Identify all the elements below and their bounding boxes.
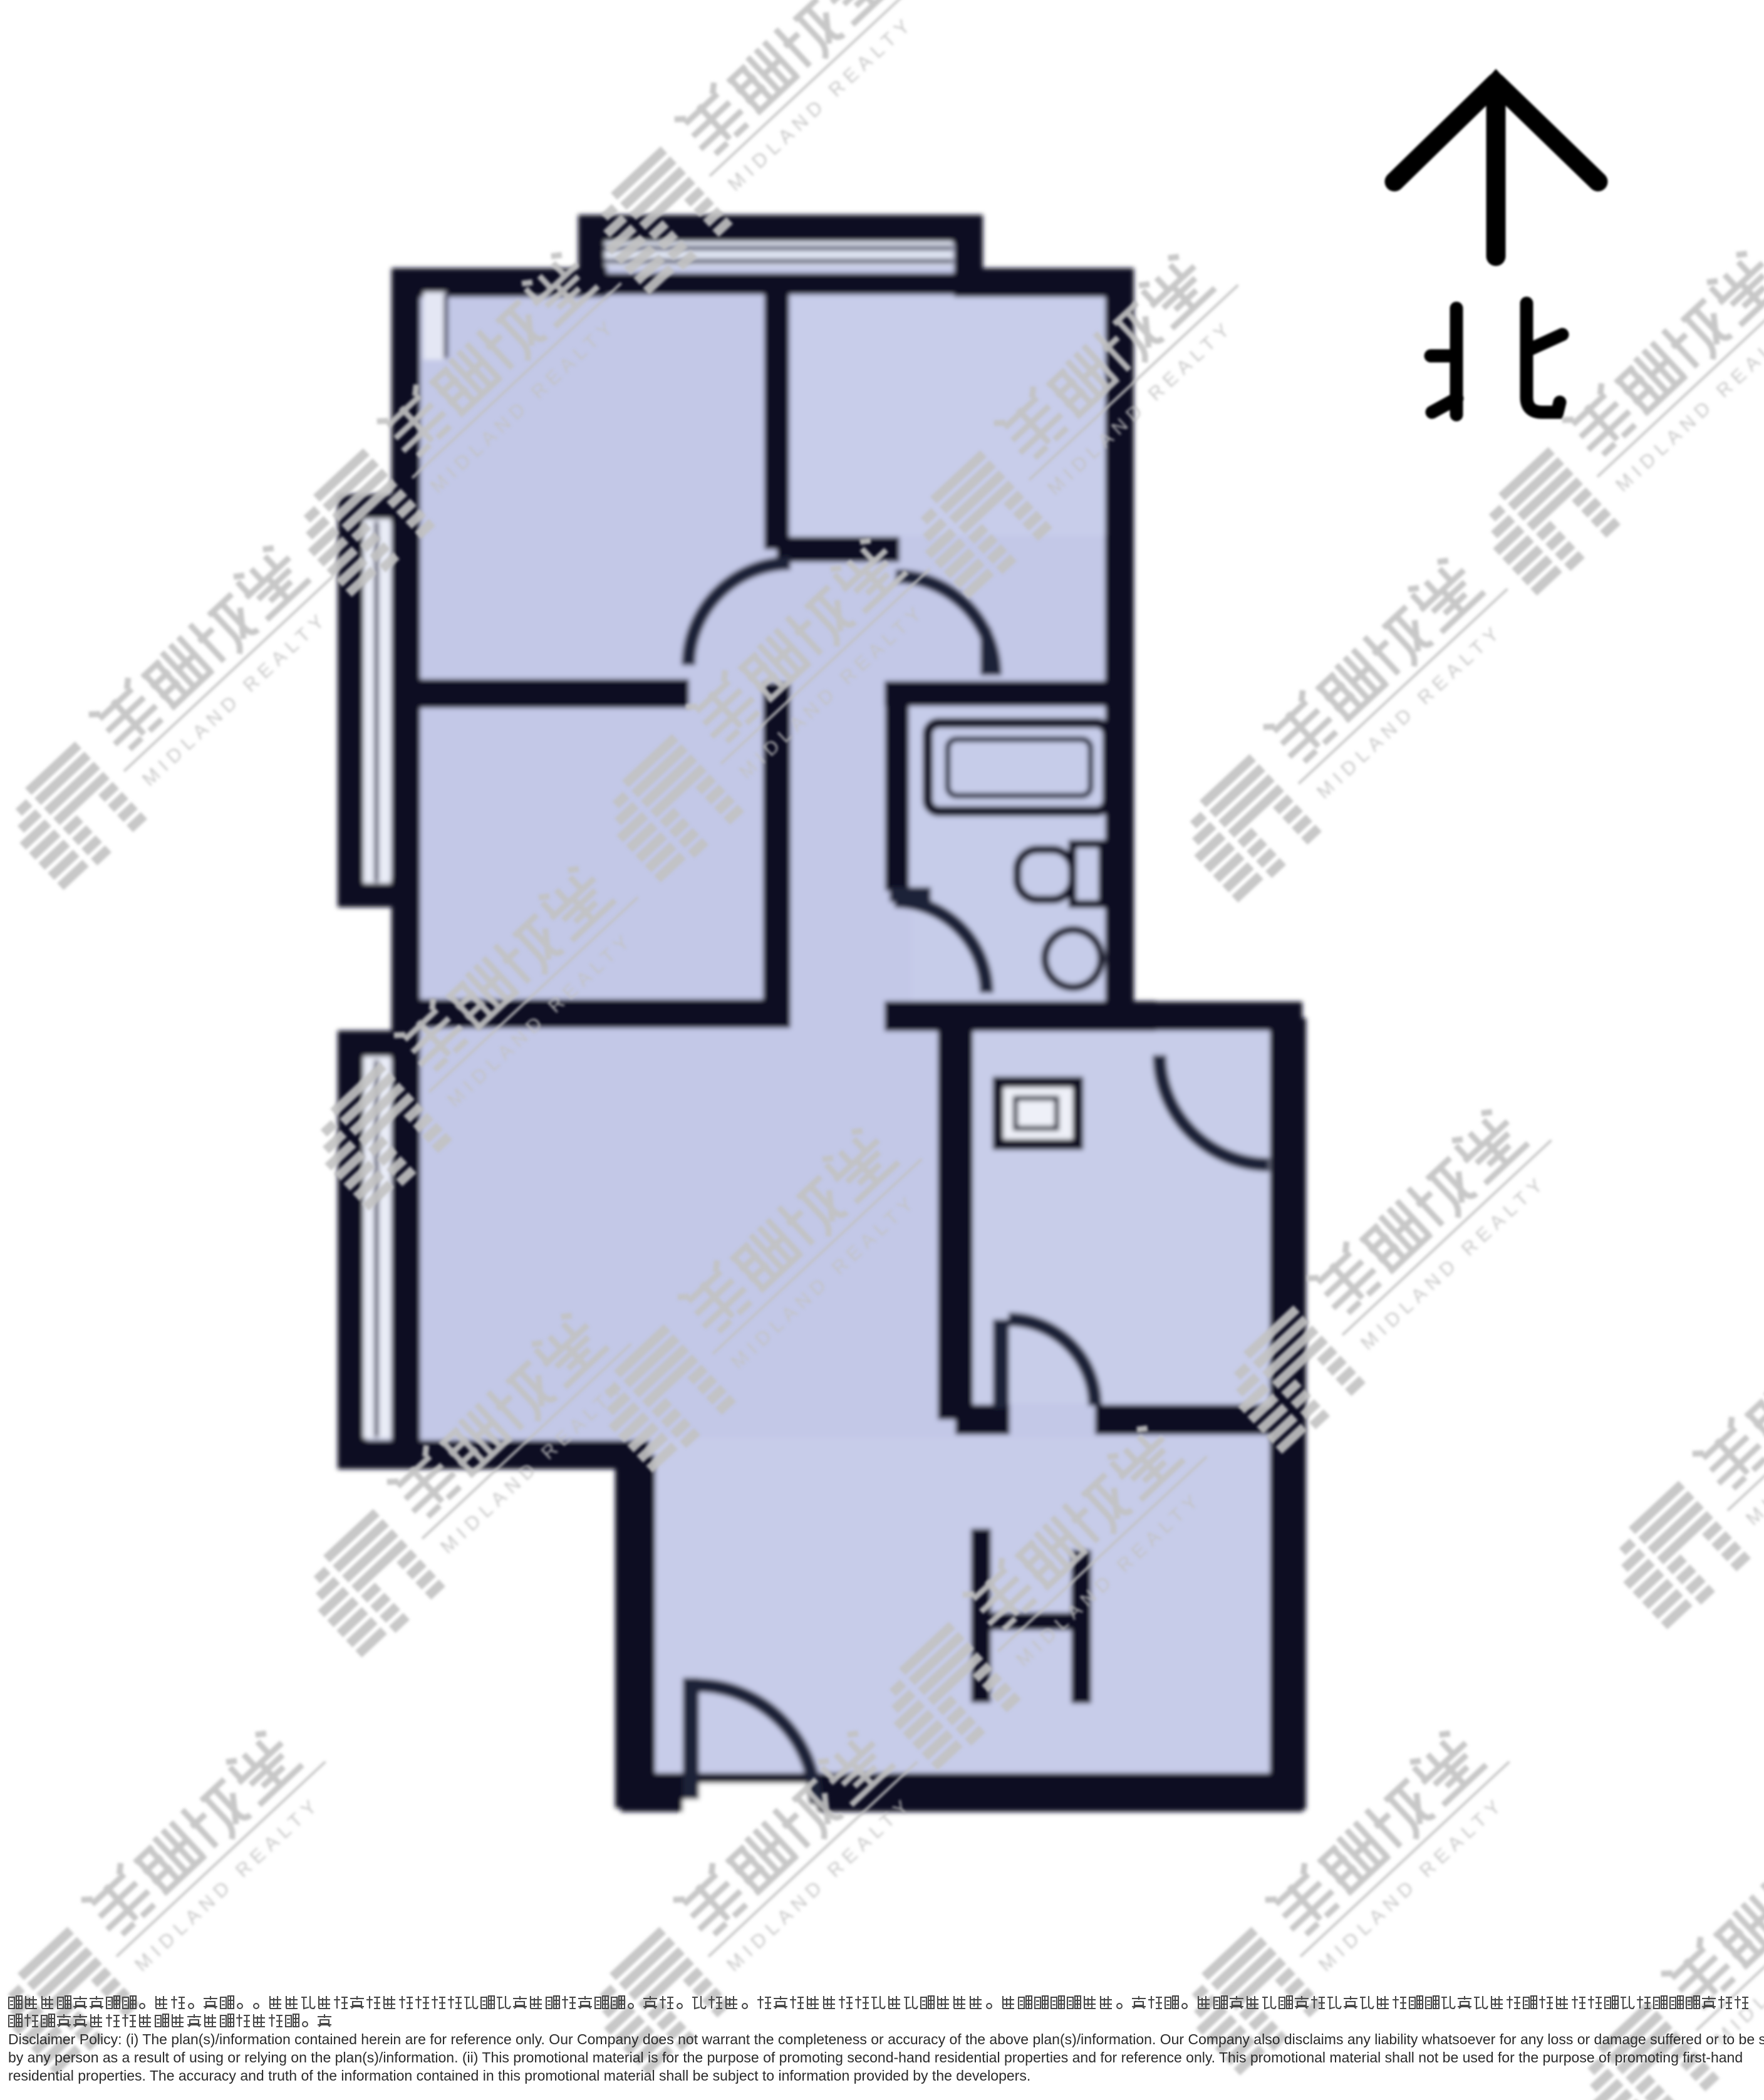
svg-text:residential properties. The ac: residential properties. The accuracy and… xyxy=(8,2067,1030,2084)
svg-text:Disclaimer Policy: (i) The pla: Disclaimer Policy: (i) The plan(s)/infor… xyxy=(8,2031,1764,2047)
svg-text:by any person as a result of u: by any person as a result of using or re… xyxy=(8,2049,1743,2066)
